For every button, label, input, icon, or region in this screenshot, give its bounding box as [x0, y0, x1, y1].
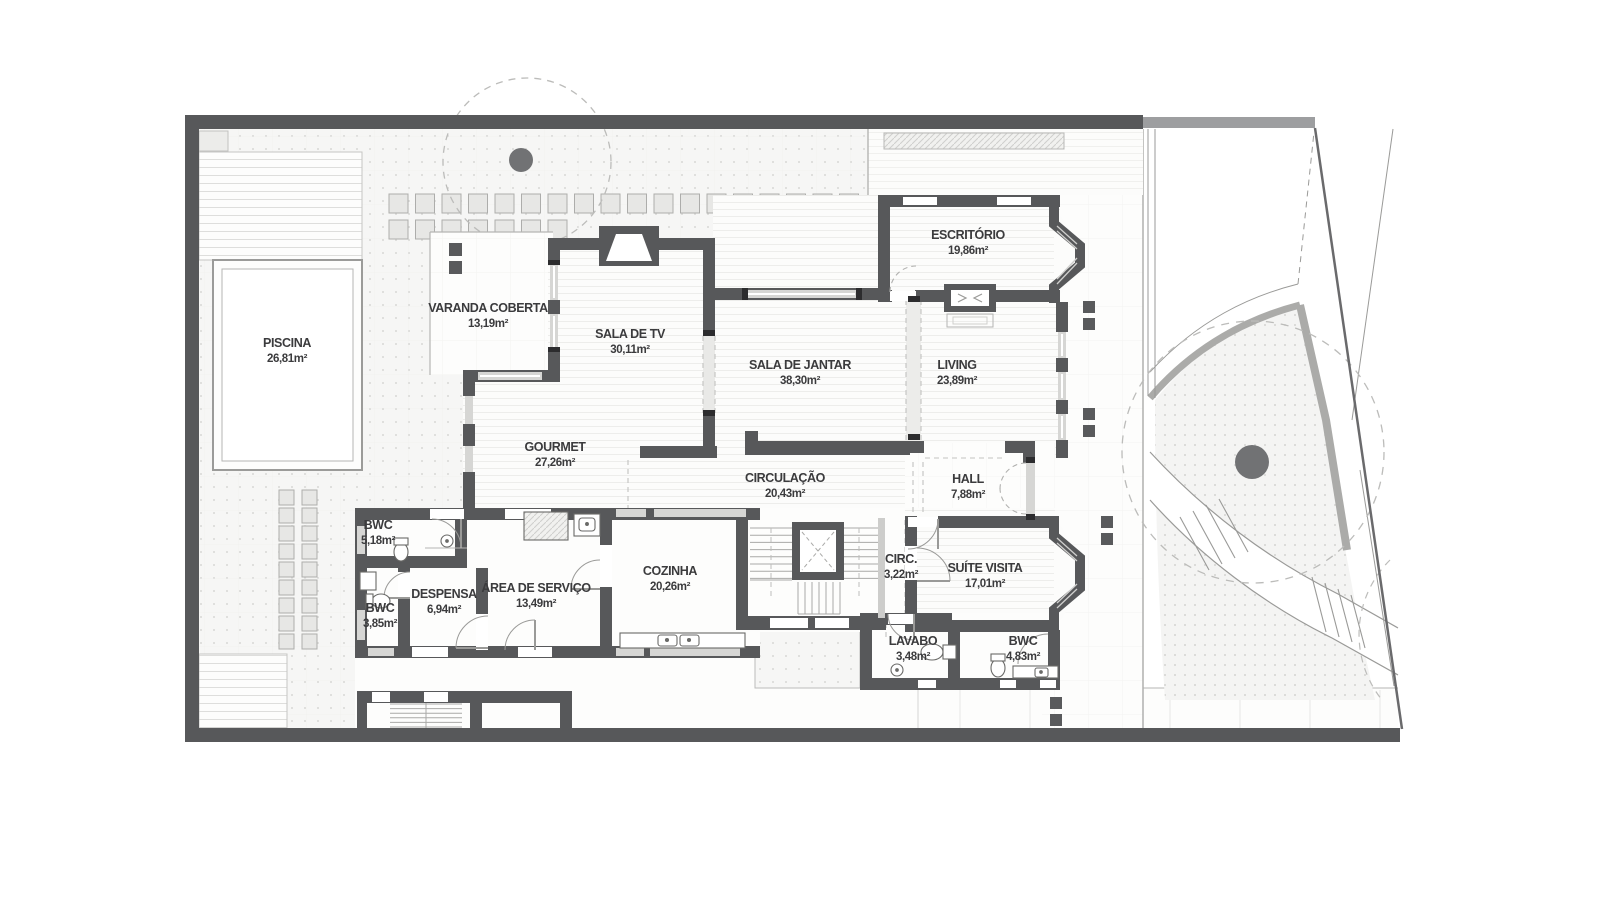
room-label: SALA DE JANTAR [749, 358, 851, 372]
room-area: 17,01m² [965, 578, 1006, 590]
room-area: 4,83m² [1006, 651, 1041, 663]
paver [654, 194, 673, 213]
paver [279, 634, 294, 649]
fireplace-icon [599, 226, 659, 266]
floor-plan-drawing: PISCINA26,81m²VARANDA COBERTA13,19m²SALA… [0, 0, 1600, 900]
paver [302, 490, 317, 505]
paver [469, 194, 488, 213]
room-label: CIRC. [885, 552, 917, 566]
planter [884, 133, 1064, 149]
paver [302, 616, 317, 631]
room-label: HALL [952, 472, 984, 486]
paver [389, 194, 408, 213]
paver [279, 526, 294, 541]
paver [575, 194, 594, 213]
room-label: ESCRITÓRIO [931, 227, 1005, 242]
room-label: VARANDA COBERTA [428, 301, 548, 315]
paver [389, 220, 408, 239]
paver [548, 194, 567, 213]
room-label: SUÍTE VISITA [948, 560, 1023, 575]
paver [628, 194, 647, 213]
floor-plan-page: PISCINA26,81m²VARANDA COBERTA13,19m²SALA… [0, 0, 1600, 900]
room-label: PISCINA [263, 336, 311, 350]
room-area: 3,85m² [363, 618, 398, 630]
deck-bottom-left [199, 654, 287, 728]
paver [302, 562, 317, 577]
room-label: COZINHA [643, 564, 698, 578]
room-area: 20,43m² [765, 488, 806, 500]
room-area: 30,11m² [610, 344, 650, 356]
room-label: BWC [364, 518, 393, 532]
room-label: CIRCULAÇÃO [745, 470, 826, 485]
room-area: 20,26m² [650, 581, 691, 593]
paver [302, 598, 317, 613]
room-label: LAVABO [889, 634, 938, 648]
paver [522, 194, 541, 213]
elevator-icon [792, 522, 844, 580]
room-area: 38,30m² [780, 375, 821, 387]
room-label: DESPENSA [411, 587, 477, 601]
paver [279, 562, 294, 577]
paver [279, 616, 294, 631]
room-area: 13,49m² [516, 598, 557, 610]
room-area: 23,89m² [937, 375, 978, 387]
room-area: 19,86m² [948, 245, 989, 257]
toilet-icon [991, 659, 1005, 677]
paver [416, 194, 435, 213]
laundry-counter [524, 512, 568, 540]
deck-top-left [199, 152, 362, 260]
room-area: 3,48m² [896, 651, 931, 663]
room-label: GOURMET [524, 440, 586, 454]
paver [279, 544, 294, 559]
room-area: 5,18m² [361, 535, 396, 547]
room-label: LIVING [937, 358, 976, 372]
toilet-icon [394, 543, 408, 561]
paver [302, 508, 317, 523]
paver [279, 508, 294, 523]
room-area: 26,81m² [267, 353, 308, 365]
paver [279, 598, 294, 613]
paver [681, 194, 700, 213]
paver [302, 634, 317, 649]
room-area: 13,19m² [468, 318, 509, 330]
room-area: 27,26m² [535, 457, 576, 469]
paver [279, 490, 294, 505]
paver [601, 194, 620, 213]
pool-icon [213, 260, 362, 470]
room-area: 7,88m² [951, 489, 986, 501]
paver [302, 544, 317, 559]
room-label: SALA DE TV [595, 327, 666, 341]
paver [302, 580, 317, 595]
paver [279, 580, 294, 595]
room-label: BWC [366, 601, 395, 615]
paver [495, 194, 514, 213]
paver [302, 526, 317, 541]
room-label: BWC [1009, 634, 1038, 648]
room-area: 6,94m² [427, 604, 462, 616]
room-area: 3,22m² [884, 569, 919, 581]
room-label: ÁREA DE SERVIÇO [481, 580, 591, 595]
